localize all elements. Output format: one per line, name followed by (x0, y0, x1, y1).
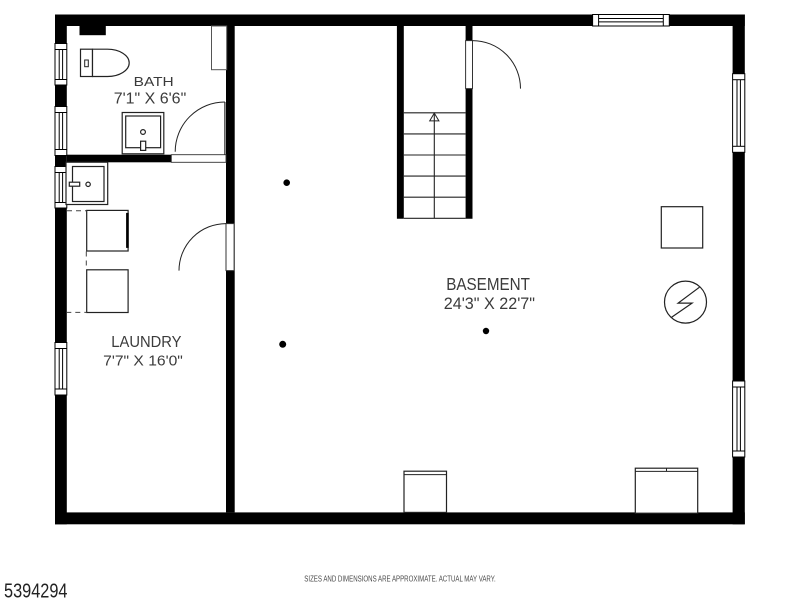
svg-text:7'7" X 16'0": 7'7" X 16'0" (103, 352, 183, 369)
svg-text:5394294: 5394294 (4, 579, 68, 600)
svg-text:7'1" X 6'6": 7'1" X 6'6" (114, 91, 187, 108)
svg-text:LAUNDRY: LAUNDRY (111, 333, 181, 351)
svg-text:BASEMENT: BASEMENT (446, 274, 530, 294)
svg-text:BATH: BATH (134, 74, 174, 89)
svg-text:24'3" X 22'7": 24'3" X 22'7" (444, 294, 535, 313)
svg-text:SIZES AND DIMENSIONS ARE APPRO: SIZES AND DIMENSIONS ARE APPROXIMATE. AC… (304, 574, 495, 583)
